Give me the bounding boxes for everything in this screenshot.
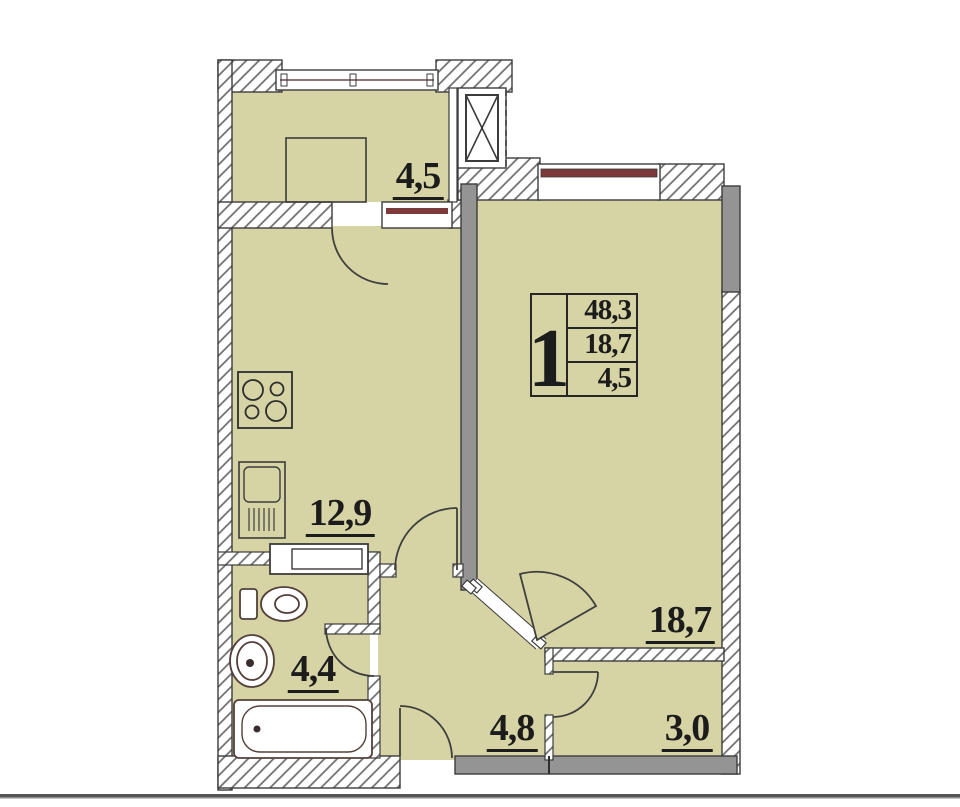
legend-areas-column: 48,3 18,7 4,5 xyxy=(568,295,636,395)
legend-room-count-cell: 1 xyxy=(532,295,568,395)
living-area-value: 18,7 xyxy=(568,329,636,363)
kitchen-living-wall xyxy=(461,184,477,590)
total-area-value: 48,3 xyxy=(568,295,636,329)
living-floor xyxy=(475,198,724,650)
hallway-area-label: 4,8 xyxy=(487,709,538,752)
bathroom-area-label: 4,4 xyxy=(288,650,339,693)
kitchen-area-label: 12,9 xyxy=(306,494,375,537)
apartment-legend: 1 48,3 18,7 4,5 xyxy=(530,293,638,397)
toilet xyxy=(240,587,307,621)
screenshot-bottom-border xyxy=(0,794,960,799)
bathtub xyxy=(234,700,372,758)
floor-plan-drawing xyxy=(0,0,960,807)
storage-area-label: 3,0 xyxy=(662,709,713,752)
balcony-glazing xyxy=(276,70,438,90)
balcony-area-label: 4,5 xyxy=(393,157,444,200)
right-column xyxy=(722,186,740,292)
ventilation-shaft xyxy=(458,88,506,168)
living-area-label: 18,7 xyxy=(646,601,715,644)
sink-counter xyxy=(270,544,368,574)
washbasin xyxy=(230,635,274,687)
extra-area-value: 4,5 xyxy=(568,363,636,395)
room-count-value: 1 xyxy=(528,323,570,395)
kitchen-window xyxy=(382,202,452,228)
bottom-gray-wall xyxy=(455,756,737,774)
floor-plan-screenshot: 4,5 12,9 4,4 4,8 3,0 18,7 1 48,3 18,7 4,… xyxy=(0,0,960,807)
living-window xyxy=(538,164,660,200)
